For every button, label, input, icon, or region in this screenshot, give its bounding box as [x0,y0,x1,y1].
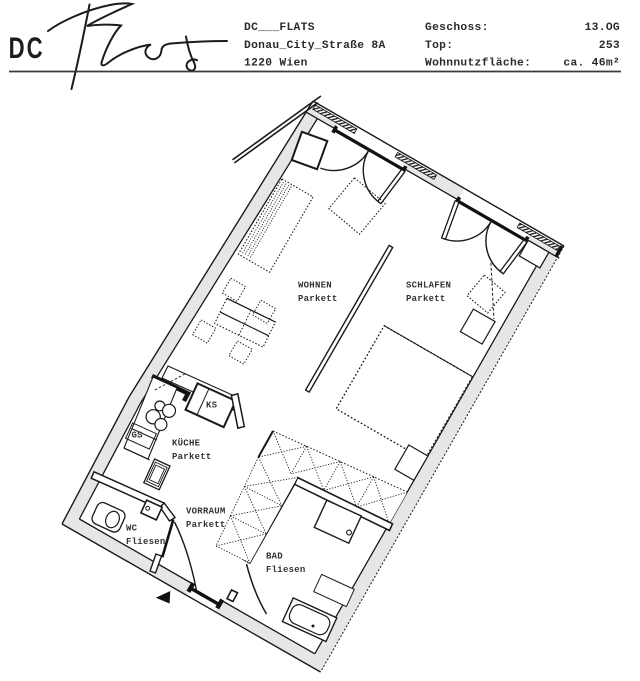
svg-text:Geschoss:: Geschoss: [425,22,489,34]
svg-text:WC: WC [126,524,138,534]
svg-text:GS: GS [132,431,144,441]
svg-text:Wohnnutzfläche:: Wohnnutzfläche: [425,58,531,70]
svg-text:BAD: BAD [266,552,283,562]
svg-text:Fliesen: Fliesen [266,565,306,575]
svg-text:DC: DC [9,31,45,65]
svg-text:KS: KS [206,401,218,411]
svg-text:ca. 46m²: ca. 46m² [563,58,620,70]
svg-text:253: 253 [599,40,620,52]
svg-text:SCHLAFEN: SCHLAFEN [406,281,451,291]
svg-text:KÜCHE: KÜCHE [172,438,201,449]
svg-text:Top:: Top: [425,40,453,52]
svg-text:VORRAUM: VORRAUM [186,507,226,517]
svg-text:13.OG: 13.OG [585,22,620,34]
svg-text:Parkett: Parkett [186,520,226,530]
svg-text:WOHNEN: WOHNEN [298,281,332,291]
svg-text:Parkett: Parkett [298,294,338,304]
svg-text:Fliesen: Fliesen [126,537,166,547]
svg-text:Donau_City_Straße 8A: Donau_City_Straße 8A [244,40,386,52]
svg-text:1220 Wien: 1220 Wien [244,58,308,70]
svg-text:Parkett: Parkett [406,294,446,304]
svg-text:DC___FLATS: DC___FLATS [244,22,315,34]
svg-text:Parkett: Parkett [172,452,212,462]
